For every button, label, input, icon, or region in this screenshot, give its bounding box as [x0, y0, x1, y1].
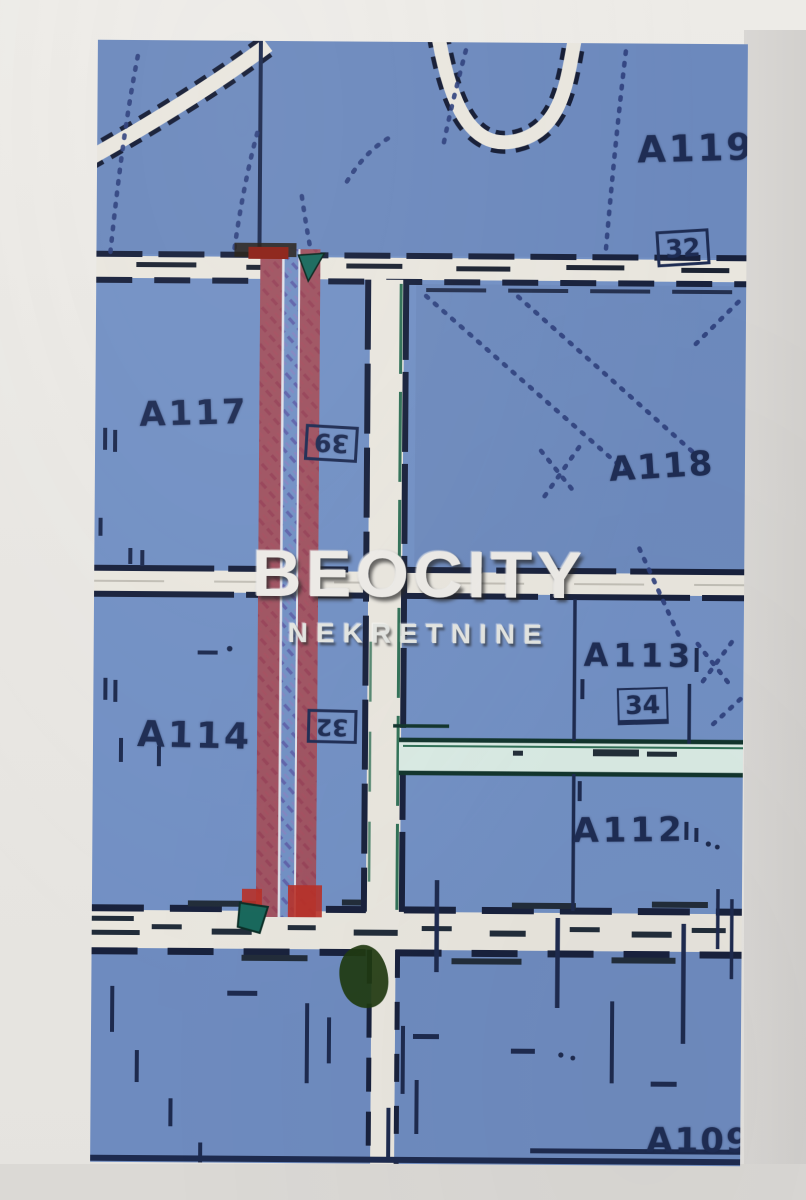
paper-margin-right: [744, 30, 806, 1200]
paper-margin-bottom: [0, 1164, 806, 1200]
plot-number-badge-32-mid: 32: [307, 709, 358, 744]
parcel-label-a114: A114: [137, 717, 253, 756]
parcel-label-a112: A112: [572, 813, 686, 848]
parcel-label-a119: A119: [637, 128, 748, 168]
map-linework: [90, 40, 748, 1167]
parcel-label-a117: A117: [139, 395, 249, 432]
plot-number-badge-32-top: 32: [655, 228, 710, 267]
cadastral-map: A119 A117 A118 A113 A114 A112 A109 32 39…: [90, 40, 748, 1167]
parcel-label-a118: A118: [608, 446, 715, 487]
parcel-label-a109: A109: [646, 1124, 748, 1159]
scanned-map-photo: A119 A117 A118 A113 A114 A112 A109 32 39…: [0, 0, 806, 1200]
plot-number-badge-34: 34: [617, 687, 669, 725]
plot-number-badge-39: 39: [304, 424, 359, 463]
parcel-label-a113: A113: [584, 639, 696, 672]
